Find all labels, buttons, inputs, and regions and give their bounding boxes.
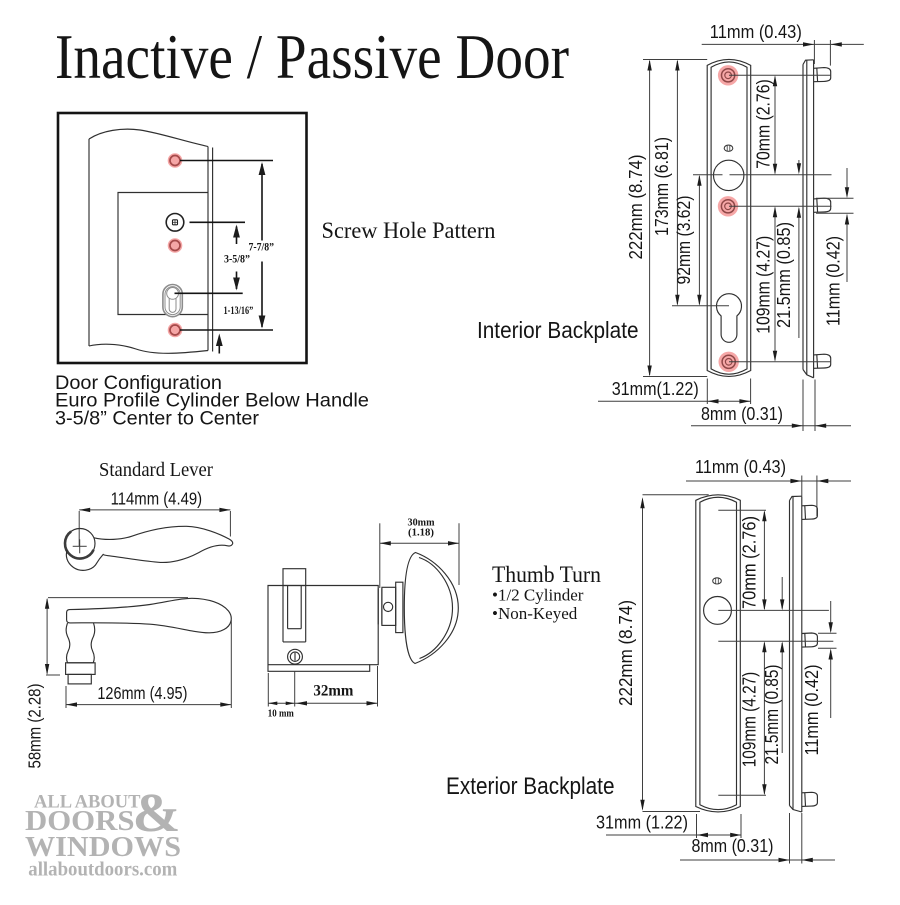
svg-text:92mm (3.62): 92mm (3.62) [674,196,694,285]
svg-text:Interior Backplate: Interior Backplate [477,317,639,343]
svg-text:8mm (0.31): 8mm (0.31) [701,404,783,424]
svg-text:126mm (4.95): 126mm (4.95) [97,683,187,703]
svg-text:1-13/16”: 1-13/16” [224,303,254,317]
svg-text:Screw Hole Pattern: Screw Hole Pattern [322,218,496,243]
svg-text:11mm (0.42): 11mm (0.42) [802,665,822,756]
svg-text:58mm (2.28): 58mm (2.28) [25,684,45,769]
svg-text:10 mm: 10 mm [268,709,295,720]
svg-text:114mm (4.49): 114mm (4.49) [111,489,203,509]
svg-text:31mm (1.22): 31mm (1.22) [596,813,688,833]
svg-text:70mm (2.76): 70mm (2.76) [754,79,774,169]
svg-text:21.5mm (0.85): 21.5mm (0.85) [774,222,794,328]
svg-text:Exterior Backplate: Exterior Backplate [446,773,615,800]
svg-text:222mm (8.74): 222mm (8.74) [626,155,646,260]
svg-text:•1/2 Cylinder: •1/2 Cylinder [492,586,584,605]
svg-text:Standard Lever: Standard Lever [99,460,213,481]
svg-text:21.5mm (0.85): 21.5mm (0.85) [762,665,782,765]
svg-text:11mm (0.42): 11mm (0.42) [824,236,844,326]
svg-text:allaboutdoors.com: allaboutdoors.com [28,858,177,880]
svg-text:109mm (4.27): 109mm (4.27) [740,672,760,768]
svg-text:70mm (2.76): 70mm (2.76) [740,516,760,609]
svg-text:•Non-Keyed: •Non-Keyed [492,604,578,623]
svg-text:173mm (6.81): 173mm (6.81) [652,137,672,236]
svg-text:31mm(1.22): 31mm(1.22) [612,379,699,399]
svg-text:11mm (0.43): 11mm (0.43) [695,457,786,477]
svg-text:32mm: 32mm [313,683,353,700]
svg-text:Thumb Turn: Thumb Turn [492,562,601,588]
svg-text:(1.18): (1.18) [408,526,434,538]
svg-text:11mm (0.43): 11mm (0.43) [710,22,802,42]
svg-text:109mm (4.27): 109mm (4.27) [754,236,774,334]
svg-text:Inactive / Passive Door: Inactive / Passive Door [55,22,569,92]
svg-text:3-5/8” Center to Center: 3-5/8” Center to Center [55,408,260,430]
svg-text:3-5/8”: 3-5/8” [224,251,250,265]
svg-text:7-7/8”: 7-7/8” [249,240,275,254]
svg-text:222mm (8.74): 222mm (8.74) [616,600,636,706]
svg-text:8mm (0.31): 8mm (0.31) [692,836,774,856]
